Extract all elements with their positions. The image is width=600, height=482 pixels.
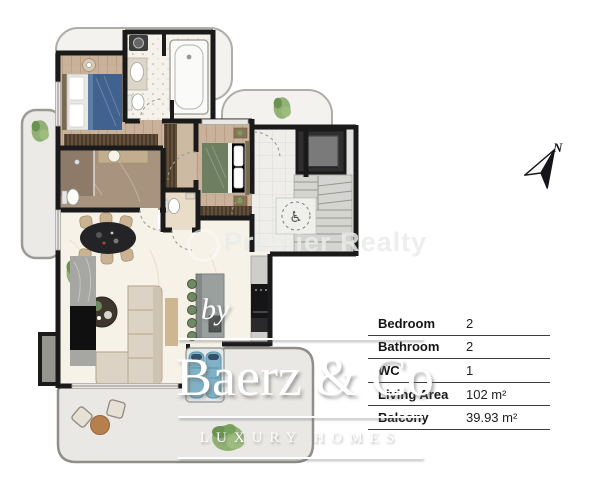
terrace-table-icon bbox=[91, 416, 110, 435]
wardrobe-icon bbox=[64, 134, 158, 147]
washer-icon bbox=[129, 35, 148, 51]
compass-icon: N bbox=[525, 140, 566, 188]
watermark: Premier Realty bbox=[224, 227, 427, 258]
nightstand-icon bbox=[83, 59, 96, 72]
row-value: 102 m² bbox=[466, 387, 506, 402]
logo-by: by bbox=[201, 293, 229, 327]
media-wall-icon bbox=[70, 256, 96, 366]
table-row: Bedroom 2 bbox=[368, 312, 550, 336]
row-value: 1 bbox=[466, 363, 473, 378]
logo-brand-name: Baerz & Co bbox=[176, 341, 424, 415]
toilet-icon bbox=[62, 189, 79, 205]
logo-divider bbox=[178, 338, 423, 340]
bed-blue-icon bbox=[62, 74, 122, 130]
rug-icon bbox=[165, 298, 178, 346]
logo-tagline: LUXURY HOMES bbox=[178, 420, 423, 457]
row-value: 2 bbox=[466, 316, 473, 331]
logo-divider bbox=[178, 416, 423, 418]
closet-wardrobe bbox=[164, 124, 177, 188]
logo-divider bbox=[178, 457, 423, 459]
bed-green-icon bbox=[202, 141, 249, 195]
shower-icon bbox=[60, 150, 94, 196]
row-value: 2 bbox=[466, 339, 473, 354]
row-value: 39.93 m² bbox=[466, 410, 517, 425]
bathtub-icon bbox=[170, 40, 208, 114]
compass-north-label: N bbox=[552, 140, 563, 155]
row-label: Bedroom bbox=[368, 316, 466, 331]
vanity-sink-icon bbox=[98, 150, 148, 163]
sink-icon bbox=[127, 58, 147, 90]
watermark-ring-icon bbox=[187, 229, 220, 262]
floorplan-page: ♿ bbox=[0, 0, 600, 482]
toilet-icon bbox=[127, 94, 144, 110]
svg-text:♿: ♿ bbox=[289, 208, 302, 226]
